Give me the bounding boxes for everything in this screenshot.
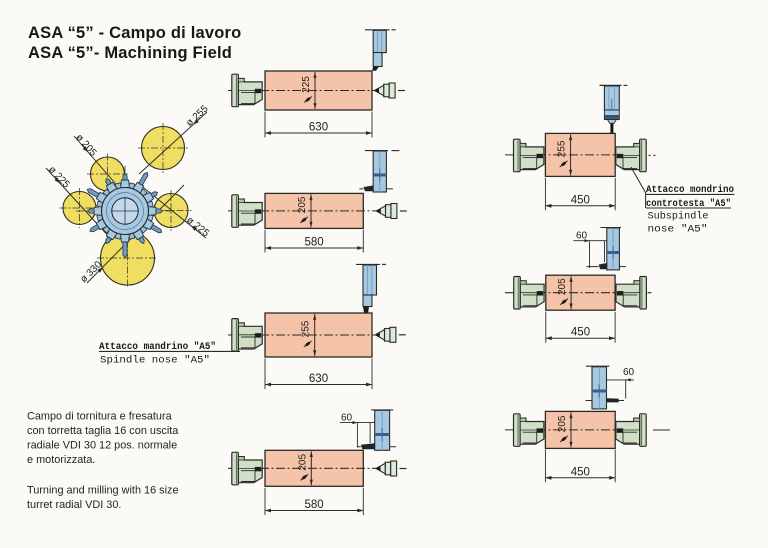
svg-text:turret radial VDI 30.: turret radial VDI 30. (27, 499, 121, 511)
svg-text:450: 450 (571, 327, 590, 339)
svg-text:205: 205 (557, 278, 568, 295)
svg-text:nose "A5": nose "A5" (648, 223, 708, 234)
svg-text:con torretta taglia 16 con usc: con torretta taglia 16 con uscita (27, 425, 179, 437)
svg-text:450: 450 (571, 194, 590, 206)
svg-text:205: 205 (557, 415, 568, 432)
svg-text:Attacco mandrino "A5": Attacco mandrino "A5" (99, 341, 216, 352)
svg-text:Turning and milling with 16 si: Turning and milling with 16 size (27, 485, 179, 497)
svg-text:controtesta "A5": controtesta "A5" (646, 198, 731, 209)
svg-text:radiale VDI 30 12 pos. normale: radiale VDI 30 12 pos. normale (27, 440, 177, 452)
svg-text:ASA “5”- Machining Field: ASA “5”- Machining Field (28, 44, 232, 62)
svg-text:580: 580 (305, 237, 324, 249)
svg-text:Campo di tornitura e fresatura: Campo di tornitura e fresatura (27, 411, 173, 423)
svg-text:60: 60 (341, 412, 353, 423)
svg-text:Spindle nose "A5": Spindle nose "A5" (100, 354, 210, 365)
svg-text:630: 630 (309, 373, 328, 385)
svg-text:630: 630 (309, 122, 328, 134)
svg-text:205: 205 (297, 454, 308, 471)
svg-text:Subspindle: Subspindle (648, 210, 709, 221)
svg-text:225: 225 (301, 76, 312, 93)
svg-text:e motorizzata.: e motorizzata. (27, 454, 95, 466)
svg-text:450: 450 (571, 466, 590, 478)
svg-text:ASA “5” - Campo di lavoro: ASA “5” - Campo di lavoro (28, 24, 241, 42)
svg-text:205: 205 (297, 196, 308, 213)
svg-text:60: 60 (623, 367, 635, 378)
svg-text:255: 255 (301, 320, 312, 337)
svg-text:Attacco mondrino: Attacco mondrino (646, 184, 734, 195)
svg-text:580: 580 (305, 499, 324, 511)
svg-text:255: 255 (557, 140, 568, 157)
